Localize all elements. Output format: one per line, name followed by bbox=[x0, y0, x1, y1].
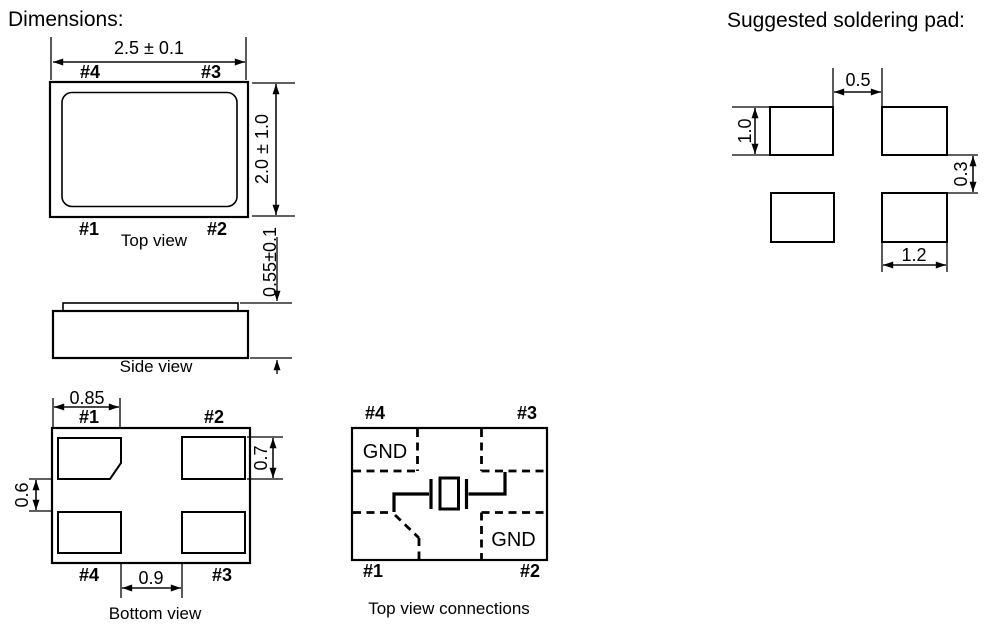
top-view-pin1-label: #1 bbox=[79, 219, 99, 239]
datasheet-dimensions-page: Dimensions: Suggested soldering pad : 2.… bbox=[0, 0, 1002, 641]
solder-pad-bottom-left bbox=[771, 193, 834, 242]
side-view-caption: Side view bbox=[120, 357, 193, 376]
solder-pad-top-right bbox=[882, 107, 947, 155]
dimensions-heading: Dimensions: bbox=[8, 8, 124, 31]
side-view-height-dim: 0.55±0.1 bbox=[260, 227, 280, 297]
bottom-view-pad-height-dim: 0.7 bbox=[251, 445, 271, 470]
pad-3 bbox=[182, 512, 245, 553]
soldering-pad-heading-colon: : bbox=[959, 9, 965, 32]
bottom-view-pad-width-dim: 0.85 bbox=[69, 388, 104, 408]
connections-pin1-label: #1 bbox=[363, 561, 383, 581]
pad-1 bbox=[58, 438, 121, 479]
top-view-caption: Top view bbox=[121, 231, 188, 250]
pad-4 bbox=[58, 512, 121, 553]
solder-gap-vertical-dim: 0.3 bbox=[951, 161, 971, 186]
top-view-height-dim: 2.0 ± 1.0 bbox=[252, 114, 272, 184]
bottom-view-caption: Bottom view bbox=[109, 604, 202, 623]
solder-gap-horizontal-dim: 0.5 bbox=[845, 70, 870, 90]
solder-pad-bottom-right bbox=[882, 193, 947, 242]
bottom-view-pin2-label: #2 bbox=[204, 407, 224, 427]
bottom-view: 0.85 #1 #2 0.7 0.6 0.9 #4 #3 Bottom view bbox=[12, 388, 283, 623]
bottom-view-gap-horizontal-dim: 0.9 bbox=[138, 568, 163, 588]
bottom-view-pin1-label: #1 bbox=[79, 407, 99, 427]
solder-pad-width-dim: 1.2 bbox=[901, 245, 926, 265]
top-view: 2.5 ± 0.1 #4 #3 #1 #2 Top view 2.0 ± 1.0 bbox=[50, 37, 295, 250]
top-view-pin2-label: #2 bbox=[207, 219, 227, 239]
solder-pad-top-left bbox=[770, 107, 833, 155]
bottom-view-pin4-label: #4 bbox=[79, 565, 99, 585]
crystal-symbol bbox=[440, 478, 459, 509]
side-view-lid bbox=[63, 303, 238, 311]
connections-view: #4 #3 GND GND #1 #2 Top view connections bbox=[352, 403, 547, 618]
gnd-label-top: GND bbox=[363, 441, 407, 463]
side-view-body bbox=[53, 311, 248, 358]
bottom-view-gap-vertical-dim: 0.6 bbox=[12, 482, 32, 507]
pad-2 bbox=[182, 437, 245, 479]
connections-caption: Top view connections bbox=[368, 599, 530, 618]
top-view-width-dim: 2.5 ± 0.1 bbox=[114, 38, 184, 58]
top-view-pin4-label: #4 bbox=[80, 62, 100, 82]
connections-pin4-label: #4 bbox=[365, 403, 385, 423]
top-view-pin3-label: #3 bbox=[201, 62, 221, 82]
soldering-pad-heading: Suggested soldering pad bbox=[727, 9, 959, 32]
solder-pad-height-dim: 1.0 bbox=[735, 118, 755, 143]
connections-pin3-label: #3 bbox=[517, 403, 537, 423]
package-lid-outline bbox=[62, 93, 237, 207]
bottom-view-pin3-label: #3 bbox=[212, 565, 232, 585]
connections-pin2-label: #2 bbox=[520, 561, 540, 581]
soldering-pad-view: 0.5 1.0 0.3 1.2 bbox=[732, 68, 978, 272]
gnd-label-bottom: GND bbox=[491, 529, 535, 551]
